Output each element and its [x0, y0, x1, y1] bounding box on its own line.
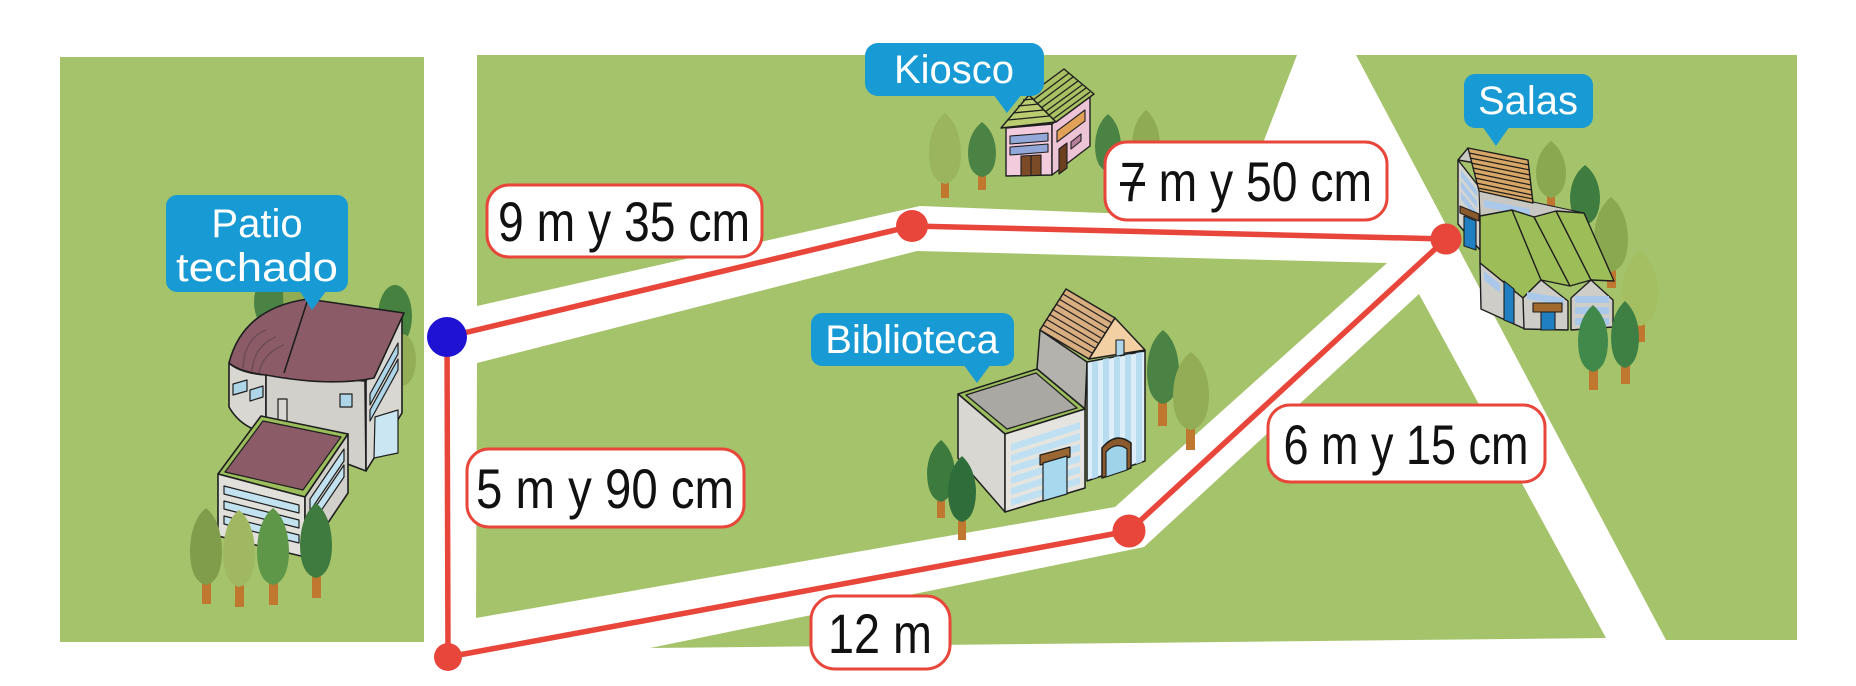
svg-text:9 m y 35 cm: 9 m y 35 cm: [498, 190, 750, 253]
svg-text:12 m: 12 m: [828, 602, 932, 665]
svg-text:5 m y 90 cm: 5 m y 90 cm: [476, 457, 734, 520]
svg-text:Salas: Salas: [1478, 79, 1578, 123]
svg-text:Biblioteca: Biblioteca: [825, 318, 999, 362]
svg-text:Patio: Patio: [211, 202, 302, 246]
svg-text:techado: techado: [176, 246, 338, 290]
svg-text:Kiosco: Kiosco: [894, 48, 1014, 92]
svg-text:6 m y 15 cm: 6 m y 15 cm: [1284, 413, 1529, 476]
svg-text:7 m y 50 cm: 7 m y 50 cm: [1120, 150, 1372, 213]
